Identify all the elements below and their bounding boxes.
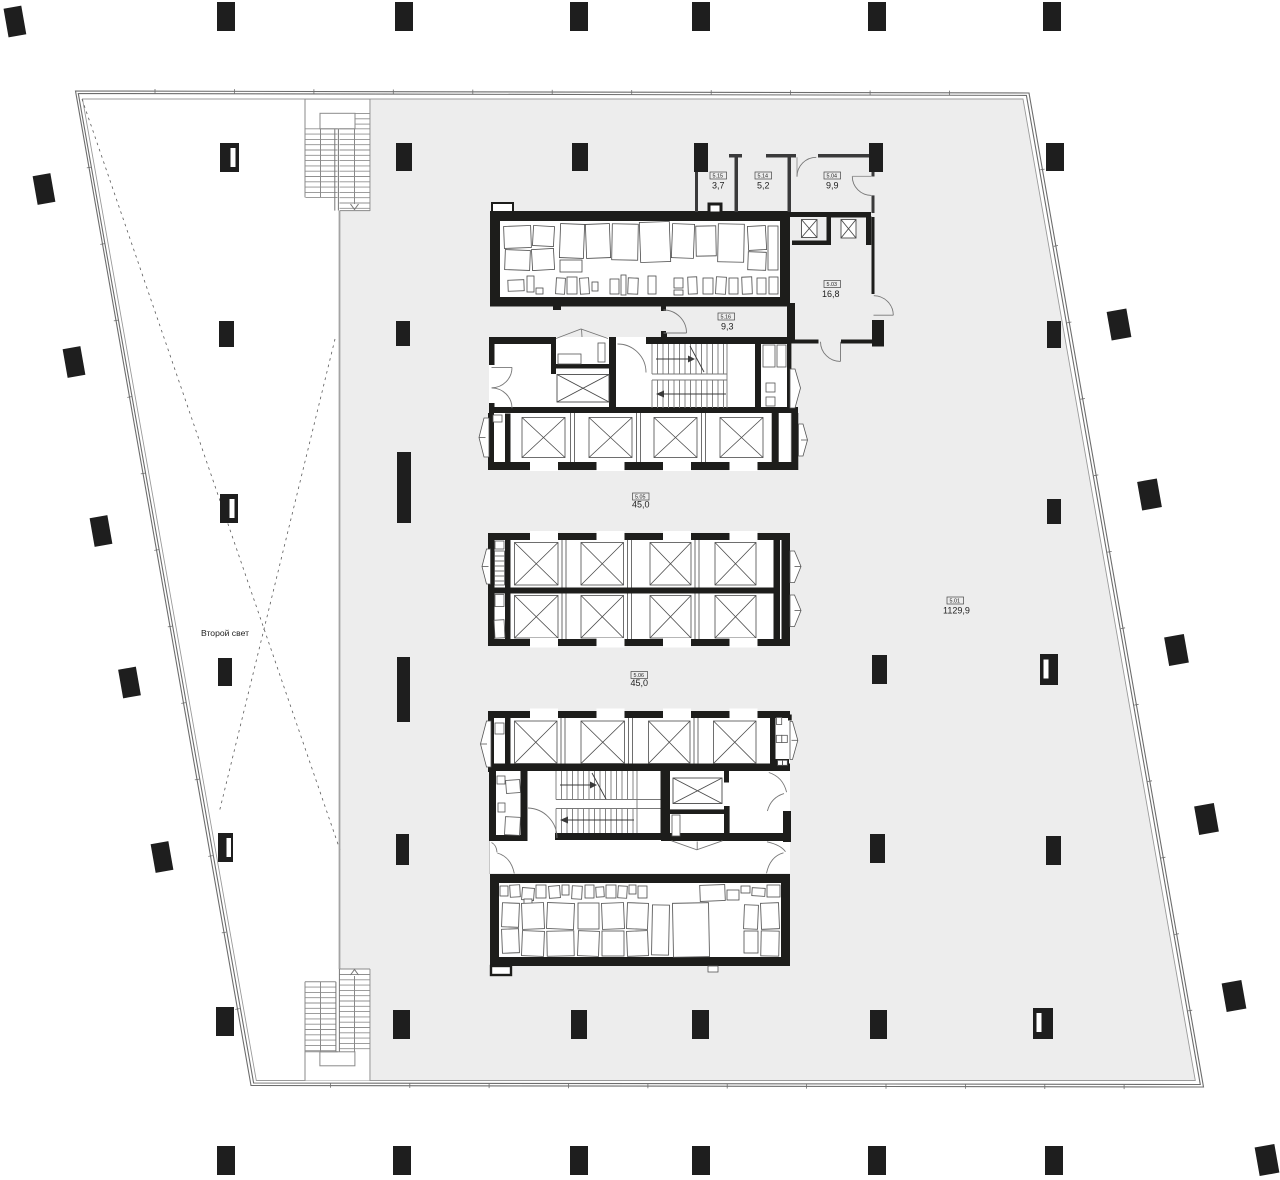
svg-text:9,9: 9,9 [826, 181, 839, 191]
svg-text:5.01: 5.01 [950, 599, 961, 605]
svg-text:45,0: 45,0 [632, 500, 650, 510]
svg-text:5,2: 5,2 [757, 181, 770, 191]
svg-text:1129,9: 1129,9 [943, 606, 970, 616]
svg-text:16,8: 16,8 [822, 289, 840, 299]
svg-text:5.15: 5.15 [713, 174, 724, 180]
svg-text:5.16: 5.16 [721, 315, 732, 321]
svg-text:5.14: 5.14 [758, 174, 769, 180]
svg-text:3,7: 3,7 [712, 181, 725, 191]
svg-text:45,0: 45,0 [631, 678, 649, 688]
svg-text:5.04: 5.04 [827, 174, 838, 180]
svg-text:Второй свет: Второй свет [201, 628, 249, 638]
svg-text:9,3: 9,3 [721, 322, 734, 332]
svg-text:5.03: 5.03 [827, 282, 838, 288]
